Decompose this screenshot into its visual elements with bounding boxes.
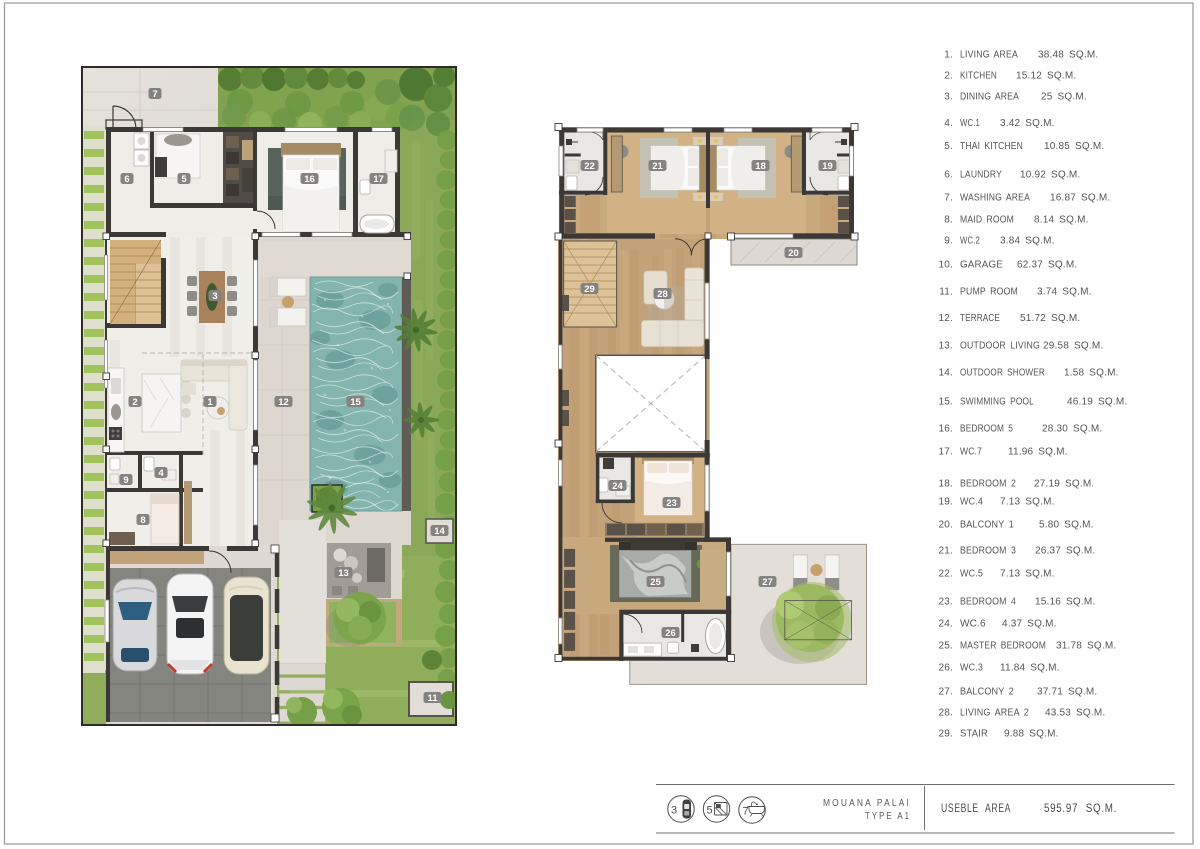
- svg-text:27.19 SQ.M.: 27.19 SQ.M.: [1034, 479, 1094, 490]
- svg-text:15.12 SQ.M.: 15.12 SQ.M.: [1016, 71, 1076, 82]
- svg-text:17: 17: [373, 174, 384, 185]
- svg-text:21: 21: [652, 161, 663, 172]
- svg-text:22.: 22.: [938, 569, 953, 580]
- svg-text:16: 16: [304, 174, 315, 185]
- svg-text:STAIR: STAIR: [960, 729, 988, 740]
- svg-text:24: 24: [612, 481, 623, 492]
- svg-text:11: 11: [427, 693, 438, 704]
- svg-text:8.: 8.: [944, 215, 953, 226]
- svg-text:9.: 9.: [944, 236, 953, 247]
- svg-text:15: 15: [350, 397, 361, 408]
- svg-text:WASHING AREA: WASHING AREA: [960, 193, 1030, 204]
- svg-text:62.37 SQ.M.: 62.37 SQ.M.: [1017, 260, 1077, 271]
- svg-text:51.72 SQ.M.: 51.72 SQ.M.: [1020, 313, 1080, 324]
- svg-text:LIVING AREA: LIVING AREA: [960, 50, 1018, 61]
- svg-text:7.: 7.: [944, 193, 953, 204]
- svg-text:BEDROOM 4: BEDROOM 4: [960, 597, 1016, 608]
- svg-text:26: 26: [665, 628, 676, 639]
- svg-text:25: 25: [650, 577, 661, 588]
- svg-text:BEDROOM 3: BEDROOM 3: [960, 546, 1016, 557]
- svg-text:BALCONY 1: BALCONY 1: [960, 520, 1014, 531]
- svg-text:3.84 SQ.M.: 3.84 SQ.M.: [1000, 236, 1055, 247]
- svg-text:1.58 SQ.M.: 1.58 SQ.M.: [1064, 368, 1119, 379]
- svg-text:595.97 SQ.M.: 595.97 SQ.M.: [1044, 803, 1117, 815]
- svg-text:MAID ROOM: MAID ROOM: [960, 215, 1014, 226]
- svg-text:4.: 4.: [944, 118, 953, 129]
- svg-text:5: 5: [181, 174, 187, 185]
- svg-text:15.16 SQ.M.: 15.16 SQ.M.: [1035, 597, 1095, 608]
- svg-text:8: 8: [140, 515, 145, 526]
- svg-text:27.: 27.: [938, 687, 953, 698]
- svg-text:3: 3: [671, 805, 677, 817]
- svg-text:13.: 13.: [938, 341, 953, 352]
- svg-text:23: 23: [666, 498, 677, 509]
- svg-text:3.74 SQ.M.: 3.74 SQ.M.: [1037, 287, 1092, 298]
- svg-text:WC.1: WC.1: [960, 118, 980, 129]
- svg-text:43.53 SQ.M.: 43.53 SQ.M.: [1045, 708, 1105, 719]
- svg-text:23.: 23.: [938, 597, 953, 608]
- svg-text:10.85 SQ.M.: 10.85 SQ.M.: [1044, 141, 1104, 152]
- svg-text:18: 18: [755, 161, 766, 172]
- svg-text:16.87 SQ.M.: 16.87 SQ.M.: [1050, 193, 1110, 204]
- svg-text:27: 27: [762, 577, 773, 588]
- svg-text:24.: 24.: [938, 619, 953, 630]
- svg-text:LAUNDRY: LAUNDRY: [960, 170, 1002, 181]
- svg-text:WC.3: WC.3: [960, 663, 983, 674]
- svg-text:15.: 15.: [938, 397, 953, 408]
- svg-text:6: 6: [124, 174, 129, 185]
- svg-text:3.42 SQ.M.: 3.42 SQ.M.: [1000, 118, 1055, 129]
- svg-text:26.: 26.: [938, 663, 953, 674]
- svg-text:28.30 SQ.M.: 28.30 SQ.M.: [1042, 424, 1102, 435]
- svg-text:14: 14: [434, 526, 445, 537]
- svg-text:MOUANA PALAI: MOUANA PALAI: [823, 798, 911, 809]
- svg-text:4: 4: [158, 468, 164, 479]
- svg-text:11.: 11.: [939, 287, 953, 298]
- svg-text:28: 28: [657, 289, 668, 300]
- svg-text:25.: 25.: [938, 641, 953, 652]
- svg-text:KITCHEN: KITCHEN: [960, 71, 997, 82]
- svg-text:20.: 20.: [938, 520, 953, 531]
- svg-text:LIVING AREA 2: LIVING AREA 2: [960, 708, 1029, 719]
- svg-text:GARAGE: GARAGE: [960, 260, 1003, 271]
- svg-text:1: 1: [207, 397, 213, 408]
- svg-text:9: 9: [123, 475, 128, 486]
- svg-text:46.19 SQ.M.: 46.19 SQ.M.: [1067, 397, 1127, 408]
- svg-text:WC.5: WC.5: [960, 569, 983, 580]
- svg-text:TERRACE: TERRACE: [960, 313, 1000, 324]
- svg-text:21.: 21.: [938, 546, 953, 557]
- svg-text:6.: 6.: [944, 170, 953, 181]
- svg-text:WC.4: WC.4: [960, 497, 983, 508]
- svg-text:3.: 3.: [944, 92, 953, 103]
- svg-text:9.88 SQ.M.: 9.88 SQ.M.: [1004, 729, 1059, 740]
- svg-text:19.: 19.: [938, 497, 953, 508]
- svg-text:5.80 SQ.M.: 5.80 SQ.M.: [1039, 520, 1094, 531]
- svg-text:29.58 SQ.M.: 29.58 SQ.M.: [1043, 341, 1103, 352]
- svg-text:38.48 SQ.M.: 38.48 SQ.M.: [1038, 50, 1098, 61]
- svg-text:25 SQ.M.: 25 SQ.M.: [1041, 92, 1087, 103]
- svg-text:SWIMMING POOL: SWIMMING POOL: [960, 397, 1034, 408]
- svg-text:28.: 28.: [938, 708, 953, 719]
- svg-text:11.84 SQ.M.: 11.84 SQ.M.: [1000, 663, 1060, 674]
- svg-text:11.96 SQ.M.: 11.96 SQ.M.: [1008, 447, 1068, 458]
- svg-text:THAI KITCHEN: THAI KITCHEN: [960, 141, 1023, 152]
- svg-text:31.78 SQ.M.: 31.78 SQ.M.: [1056, 641, 1116, 652]
- svg-text:7: 7: [152, 89, 157, 100]
- svg-text:BEDROOM 2: BEDROOM 2: [960, 479, 1016, 490]
- svg-text:5: 5: [707, 805, 713, 817]
- svg-text:WC.6: WC.6: [960, 619, 986, 630]
- svg-text:19: 19: [822, 161, 833, 172]
- svg-text:10.92 SQ.M.: 10.92 SQ.M.: [1020, 170, 1080, 181]
- svg-text:7: 7: [743, 806, 749, 818]
- svg-text:WC.2: WC.2: [960, 236, 980, 247]
- svg-text:10.: 10.: [938, 260, 953, 271]
- svg-text:14.: 14.: [938, 368, 953, 379]
- svg-text:2: 2: [132, 397, 137, 408]
- svg-text:18.: 18.: [938, 479, 953, 490]
- svg-text:29.: 29.: [938, 729, 953, 740]
- svg-text:WC.7: WC.7: [960, 447, 982, 458]
- svg-text:OUTDOOR SHOWER: OUTDOOR SHOWER: [960, 368, 1045, 379]
- svg-text:7.13 SQ.M.: 7.13 SQ.M.: [1000, 569, 1055, 580]
- svg-text:3: 3: [212, 291, 217, 302]
- svg-text:26.37 SQ.M.: 26.37 SQ.M.: [1035, 546, 1095, 557]
- svg-text:1.: 1.: [944, 50, 953, 61]
- svg-text:4.37 SQ.M.: 4.37 SQ.M.: [1002, 619, 1057, 630]
- svg-text:12: 12: [278, 397, 289, 408]
- svg-text:OUTDOOR LIVING: OUTDOOR LIVING: [960, 341, 1040, 352]
- svg-text:16.: 16.: [938, 424, 953, 435]
- svg-text:DINING AREA: DINING AREA: [960, 92, 1019, 103]
- svg-text:29: 29: [584, 284, 595, 295]
- svg-text:BALCONY 2: BALCONY 2: [960, 687, 1014, 698]
- svg-text:8.14 SQ.M.: 8.14 SQ.M.: [1034, 215, 1089, 226]
- svg-text:2.: 2.: [944, 71, 953, 82]
- svg-text:BEDROOM 5: BEDROOM 5: [960, 424, 1013, 435]
- svg-text:12.: 12.: [938, 313, 953, 324]
- svg-text:37.71 SQ.M.: 37.71 SQ.M.: [1037, 687, 1097, 698]
- svg-text:17.: 17.: [938, 447, 953, 458]
- svg-text:20: 20: [788, 248, 799, 259]
- svg-text:13: 13: [338, 568, 349, 579]
- svg-text:TYPE A1: TYPE A1: [865, 811, 911, 822]
- svg-text:7.13 SQ.M.: 7.13 SQ.M.: [1000, 497, 1055, 508]
- svg-text:22: 22: [584, 161, 595, 172]
- svg-text:PUMP ROOM: PUMP ROOM: [960, 287, 1018, 298]
- svg-text:5.: 5.: [944, 141, 953, 152]
- svg-text:MASTER BEDROOM: MASTER BEDROOM: [960, 641, 1046, 652]
- svg-text:USEBLE AREA: USEBLE AREA: [941, 803, 1011, 815]
